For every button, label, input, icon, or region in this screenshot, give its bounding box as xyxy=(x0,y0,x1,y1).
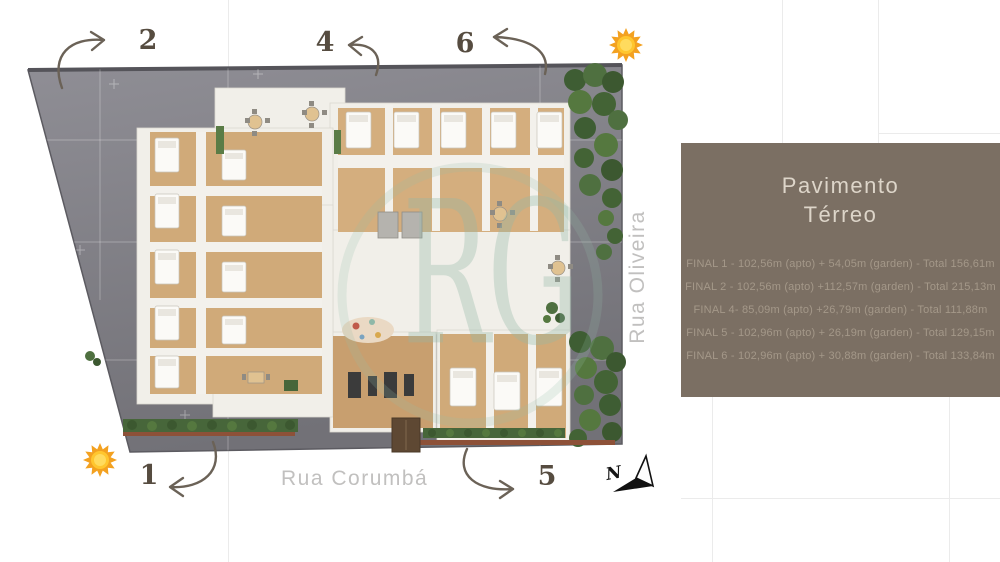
unit-marker-5: 5 xyxy=(532,461,562,492)
sheet-grid-line xyxy=(681,498,1000,499)
room-dividers xyxy=(150,105,564,438)
unit-marker-6: 6 xyxy=(450,28,480,59)
panel-title-line1: Pavimento xyxy=(681,171,1000,200)
sheet-grid-line xyxy=(878,133,1000,134)
bed-icon xyxy=(222,262,246,292)
bed-icon xyxy=(222,206,246,236)
unit-area-row: FINAL 2 - 102,56m (apto) +112,57m (garde… xyxy=(681,276,1000,299)
unit-marker-2: 2 xyxy=(133,25,163,56)
arrow-unit-4 xyxy=(349,37,378,75)
unit-area-row: FINAL 5 - 102,96m (apto) + 26,19m (garde… xyxy=(681,322,1000,345)
compass-n-letter: N xyxy=(603,462,624,485)
pavement-grid-lines xyxy=(28,65,622,452)
table-icon xyxy=(302,101,327,128)
bed-icon xyxy=(155,138,179,172)
panel-title-line2: Térreo xyxy=(681,200,1000,229)
table-icon xyxy=(245,109,270,136)
sun-icon-east xyxy=(608,27,644,63)
landscaping-group xyxy=(85,63,628,447)
unit-area-row: FINAL 4- 85,09m (apto) +26,79m (garden) … xyxy=(681,299,1000,322)
courtyard-shrubs xyxy=(85,126,565,391)
elevator-core xyxy=(378,212,422,238)
bed-icon xyxy=(537,112,562,148)
bed-icon xyxy=(536,368,562,406)
arrow-unit-6 xyxy=(494,29,546,74)
dining-table-icon xyxy=(242,372,270,383)
bed-icon xyxy=(155,250,179,284)
bed-icon xyxy=(441,112,466,148)
compass-north-icon: N xyxy=(596,448,660,500)
gym-equipment xyxy=(348,372,414,398)
unit-area-row: FINAL 6 - 102,96m (apto) + 30,88m (garde… xyxy=(681,345,1000,368)
hedge-bottom-right xyxy=(395,428,615,445)
play-mat-icon xyxy=(342,317,394,343)
hedge-bottom-left xyxy=(123,419,298,436)
trees-right-bottom xyxy=(569,331,626,447)
unit-marker-1: 1 xyxy=(134,460,164,491)
trees-top-right xyxy=(564,63,628,208)
sheet-grid-line xyxy=(878,0,879,143)
bed-icon xyxy=(222,316,246,344)
bed-icon xyxy=(346,112,371,148)
wood-floor-areas xyxy=(150,108,566,438)
sheet-grid-line xyxy=(782,0,783,143)
building-footprint xyxy=(137,88,570,442)
bed-icon xyxy=(494,372,520,410)
watermark-swoosh xyxy=(342,167,598,423)
furniture-group xyxy=(242,101,573,398)
beds-group xyxy=(155,112,562,410)
arrow-unit-2 xyxy=(58,32,104,88)
bed-icon xyxy=(394,112,419,148)
bed-icon xyxy=(491,112,516,148)
unit-area-row: FINAL 1 - 102,56m (apto) + 54,05m (garde… xyxy=(681,253,1000,276)
trees-right-middle xyxy=(596,210,623,260)
arrow-unit-5 xyxy=(464,449,513,498)
street-label-rua-corumba: Rua Corumbá xyxy=(281,467,428,491)
bed-icon xyxy=(155,194,179,228)
unit-area-list: FINAL 1 - 102,56m (apto) + 54,05m (garde… xyxy=(681,253,1000,368)
sheet-grid-line xyxy=(712,397,713,562)
bed-icon xyxy=(155,356,179,388)
table-icon xyxy=(548,255,573,282)
arrow-unit-1 xyxy=(170,442,216,496)
driveway-entrance xyxy=(392,418,420,452)
sheet-grid-line xyxy=(949,397,950,562)
unit-marker-4: 4 xyxy=(310,27,340,58)
sun-icon-west xyxy=(82,442,118,478)
sheet-grid-line xyxy=(228,0,229,562)
floor-plan-brochure-page: RG N 2 4 6 1 5 Rua Corumbá Rua Oliveira … xyxy=(0,0,1000,562)
info-panel: Pavimento Térreo FINAL 1 - 102,56m (apto… xyxy=(681,143,1000,397)
lot-pavement xyxy=(28,65,622,452)
bed-icon xyxy=(450,368,476,406)
watermark: RG xyxy=(402,176,577,374)
bed-icon xyxy=(222,150,246,180)
bed-icon xyxy=(155,306,179,340)
table-icon xyxy=(490,201,515,228)
street-label-rua-oliveira: Rua Oliveira xyxy=(626,197,650,357)
